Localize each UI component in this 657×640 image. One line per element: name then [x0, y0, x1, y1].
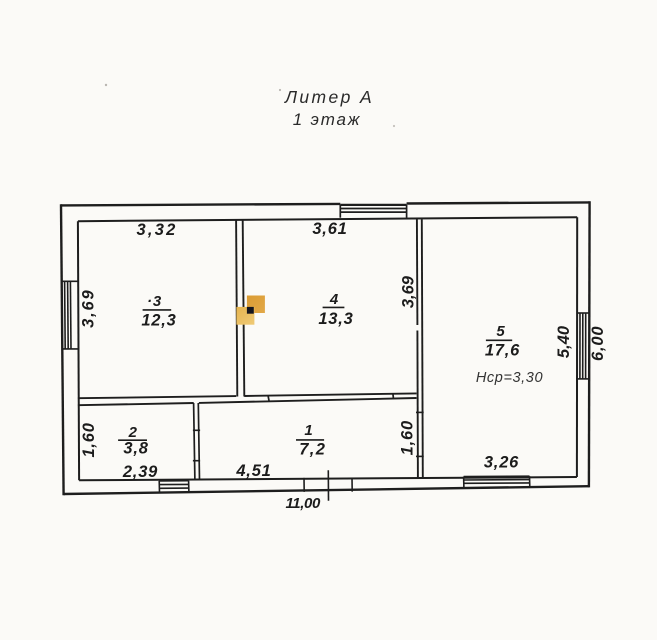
svg-text:6,00: 6,00 [589, 326, 607, 361]
svg-text:12,3: 12,3 [141, 312, 176, 330]
svg-text:3,26: 3,26 [484, 453, 519, 471]
svg-text:5,40: 5,40 [555, 325, 573, 358]
svg-text:4,51: 4,51 [235, 462, 271, 480]
svg-text:13,3: 13,3 [318, 310, 353, 328]
svg-text:1 этаж: 1 этаж [293, 110, 361, 129]
svg-text:3,69: 3,69 [80, 289, 98, 328]
svg-text:1: 1 [304, 422, 313, 439]
svg-text:Литер А: Литер А [284, 87, 374, 107]
svg-text:1,60: 1,60 [80, 422, 98, 457]
svg-text:3,8: 3,8 [123, 439, 148, 457]
svg-text:17,6: 17,6 [485, 342, 520, 360]
svg-text:1,60: 1,60 [398, 420, 416, 455]
svg-text:3,69: 3,69 [400, 275, 418, 308]
svg-text:3,61: 3,61 [312, 220, 347, 238]
svg-text:Нср=3,30: Нср=3,30 [476, 370, 543, 386]
svg-text:2,39: 2,39 [122, 463, 158, 481]
svg-text:7,2: 7,2 [299, 440, 326, 458]
svg-text:3,32: 3,32 [137, 221, 178, 239]
svg-text:4: 4 [329, 291, 339, 308]
svg-text:11,00: 11,00 [285, 495, 320, 512]
svg-text:5: 5 [496, 323, 505, 340]
svg-text:·3: ·3 [147, 293, 162, 310]
